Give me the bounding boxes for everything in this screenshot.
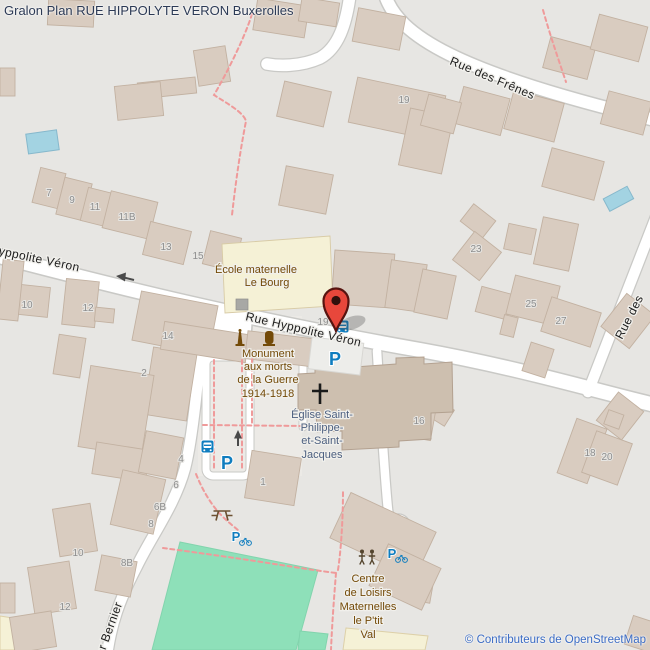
leisure-centre-label: Val: [360, 629, 375, 641]
housenumber-label: 10: [21, 300, 33, 311]
sports-pitch-small: [298, 631, 328, 650]
housenumber-label: 1: [260, 477, 266, 488]
housenumber-label: 7: [46, 188, 52, 199]
housenumber-label: 12: [59, 602, 71, 613]
housenumber-label: 8B: [121, 558, 134, 569]
svg-text:P: P: [388, 546, 397, 561]
church-label: Philippe-: [301, 422, 344, 434]
monument-label: de la Guerre: [237, 374, 298, 386]
leisure-centre-label: Centre: [351, 573, 384, 585]
housenumber-label: 8: [148, 519, 154, 530]
housenumber-label: 19: [398, 95, 410, 106]
swimming-pool: [26, 130, 59, 154]
page-title: Gralon Plan RUE HIPPOLYTE VERON Buxeroll…: [4, 3, 293, 18]
church-label: Jacques: [302, 449, 343, 461]
church-label: et-Saint-: [301, 435, 343, 447]
school-label: Le Bourg: [245, 277, 290, 289]
bus-stop-icon: [201, 440, 214, 453]
parking-icon: P: [221, 453, 233, 473]
leisure-centre-label: le P'tit: [353, 615, 383, 627]
housenumber-label: 6: [173, 480, 179, 491]
parking-icon: P: [329, 349, 341, 369]
housenumber-label: 19: [317, 317, 329, 328]
leisure-centre-label: de Loisirs: [344, 587, 392, 599]
housenumber-label: 10: [72, 548, 84, 559]
monument-label: 1914-1918: [242, 388, 295, 400]
housenumber-label: 27: [555, 316, 567, 327]
housenumber-label: 11: [90, 202, 101, 213]
housenumber-label: 16: [413, 416, 425, 427]
monument-label: Monument: [242, 348, 294, 360]
map-canvas[interactable]: P P P P: [0, 0, 650, 650]
housenumber-label: 20: [601, 452, 613, 463]
housenumber-label: 12: [82, 303, 94, 314]
housenumber-label: 11B: [118, 212, 135, 223]
osm-attribution-link[interactable]: © Contributeurs de OpenStreetMap: [465, 634, 646, 646]
housenumber-label: 14: [162, 331, 174, 342]
map-image: P P P P: [0, 0, 650, 650]
housenumber-label: 23: [470, 244, 482, 255]
housenumber-label: 18: [584, 448, 596, 459]
housenumber-label: 15: [192, 251, 204, 262]
church-label: Église Saint-: [291, 408, 353, 421]
monument-label: aux morts: [244, 361, 293, 373]
housenumber-label: 13: [160, 242, 172, 253]
school-label: École maternelle: [215, 263, 297, 276]
housenumber-label: 25: [525, 299, 537, 310]
housenumber-label: 4: [178, 454, 184, 465]
housenumber-label: 2: [141, 368, 147, 379]
leisure-centre-label: Maternelles: [340, 601, 397, 613]
svg-text:P: P: [232, 529, 241, 544]
housenumber-label: 6B: [154, 502, 167, 513]
housenumber-label: 9: [69, 195, 75, 206]
